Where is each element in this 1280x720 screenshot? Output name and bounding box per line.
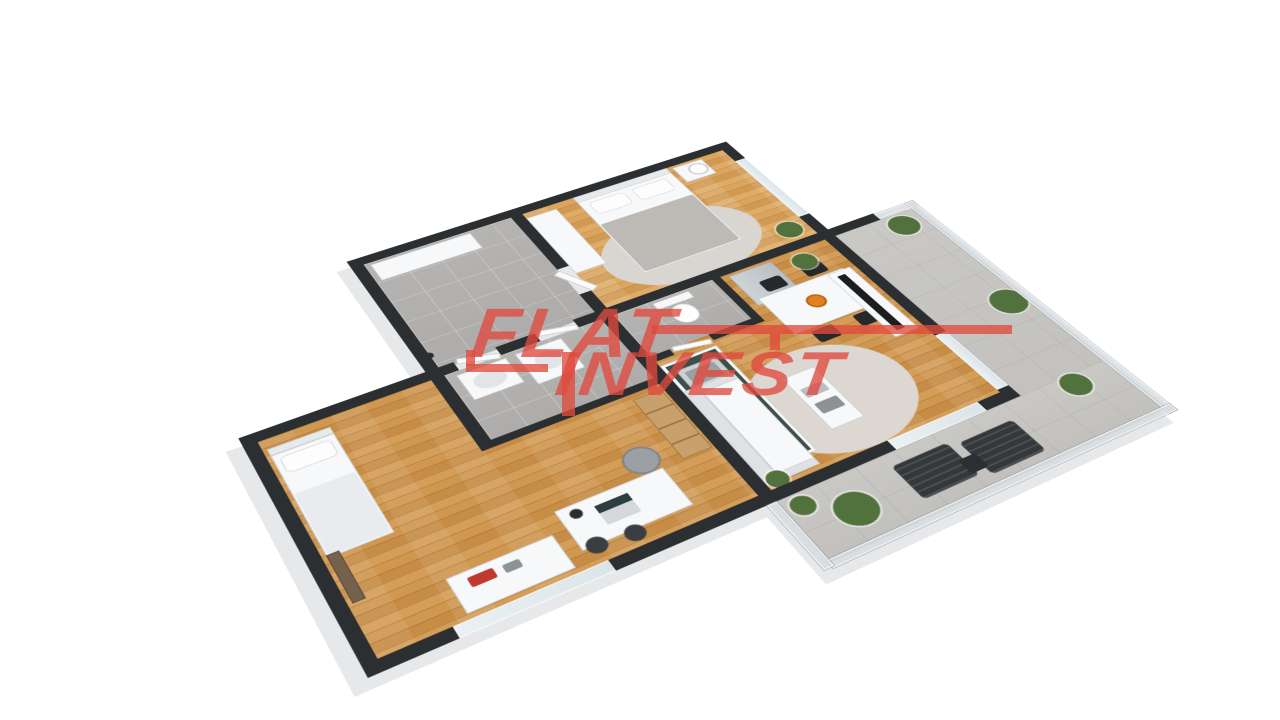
apartment-plan	[126, 99, 1192, 720]
floorplan-render: FLAT INVEST	[0, 0, 1280, 720]
